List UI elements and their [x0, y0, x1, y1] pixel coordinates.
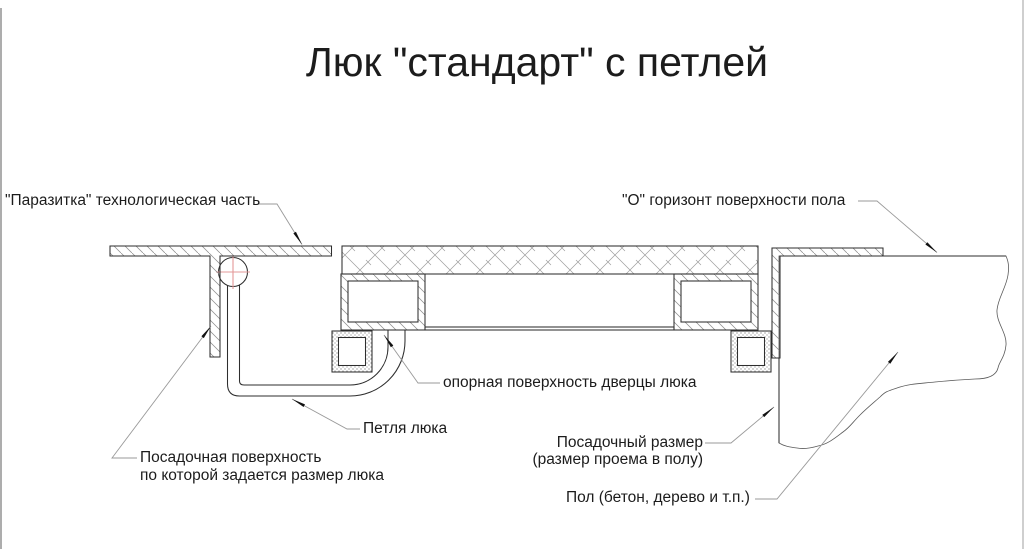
- label-floor-material: Пол (бетон, дерево и т.п.): [566, 489, 750, 507]
- label-opening-size-line1: Посадочный размер: [557, 434, 703, 451]
- door-lid-plate: [342, 246, 758, 274]
- label-hinge: Петля люка: [363, 420, 447, 438]
- label-parasitka: "Паразитка" технологическая часть: [5, 192, 260, 210]
- parasitka-plate: [110, 246, 332, 357]
- label-opening-size-line2: (размер проема в полу): [532, 451, 703, 468]
- label-door-support-surface: опорная поверхность дверцы люка: [443, 374, 697, 392]
- leader-opening-size: [705, 407, 774, 443]
- door-bottom-sheet: [425, 327, 674, 330]
- leader-hinge: [292, 399, 360, 429]
- label-opening-size: Посадочный размер (размер проема в полу): [520, 434, 703, 468]
- label-seating-surface: Посадочная поверхность по которой задает…: [140, 449, 410, 485]
- floor-edge-angle: [772, 248, 883, 358]
- leader-seating-surface: [112, 326, 211, 458]
- leader-floor-horizon: [858, 201, 937, 253]
- leader-parasitka: [258, 204, 302, 245]
- hinge-pivot: [216, 255, 250, 289]
- hinge-axis-marker-icon: [216, 255, 250, 289]
- drawing-canvas: Люк "стандарт" с петлей: [0, 0, 1024, 549]
- door-assembly: [341, 246, 758, 330]
- floor-section: [779, 256, 1009, 449]
- frame-tube-left: [332, 331, 372, 372]
- frame-tube-right: [731, 331, 771, 372]
- label-seating-surface-line1: Посадочная поверхность: [140, 449, 321, 466]
- leader-floor-material: [755, 352, 898, 499]
- label-floor-horizon: "О" горизонт поверхности пола: [622, 192, 845, 210]
- door-frame-box-right-cavity: [681, 281, 751, 322]
- label-seating-surface-line2: по которой задается размер люка: [140, 467, 384, 484]
- door-frame-box-left-cavity: [348, 281, 418, 322]
